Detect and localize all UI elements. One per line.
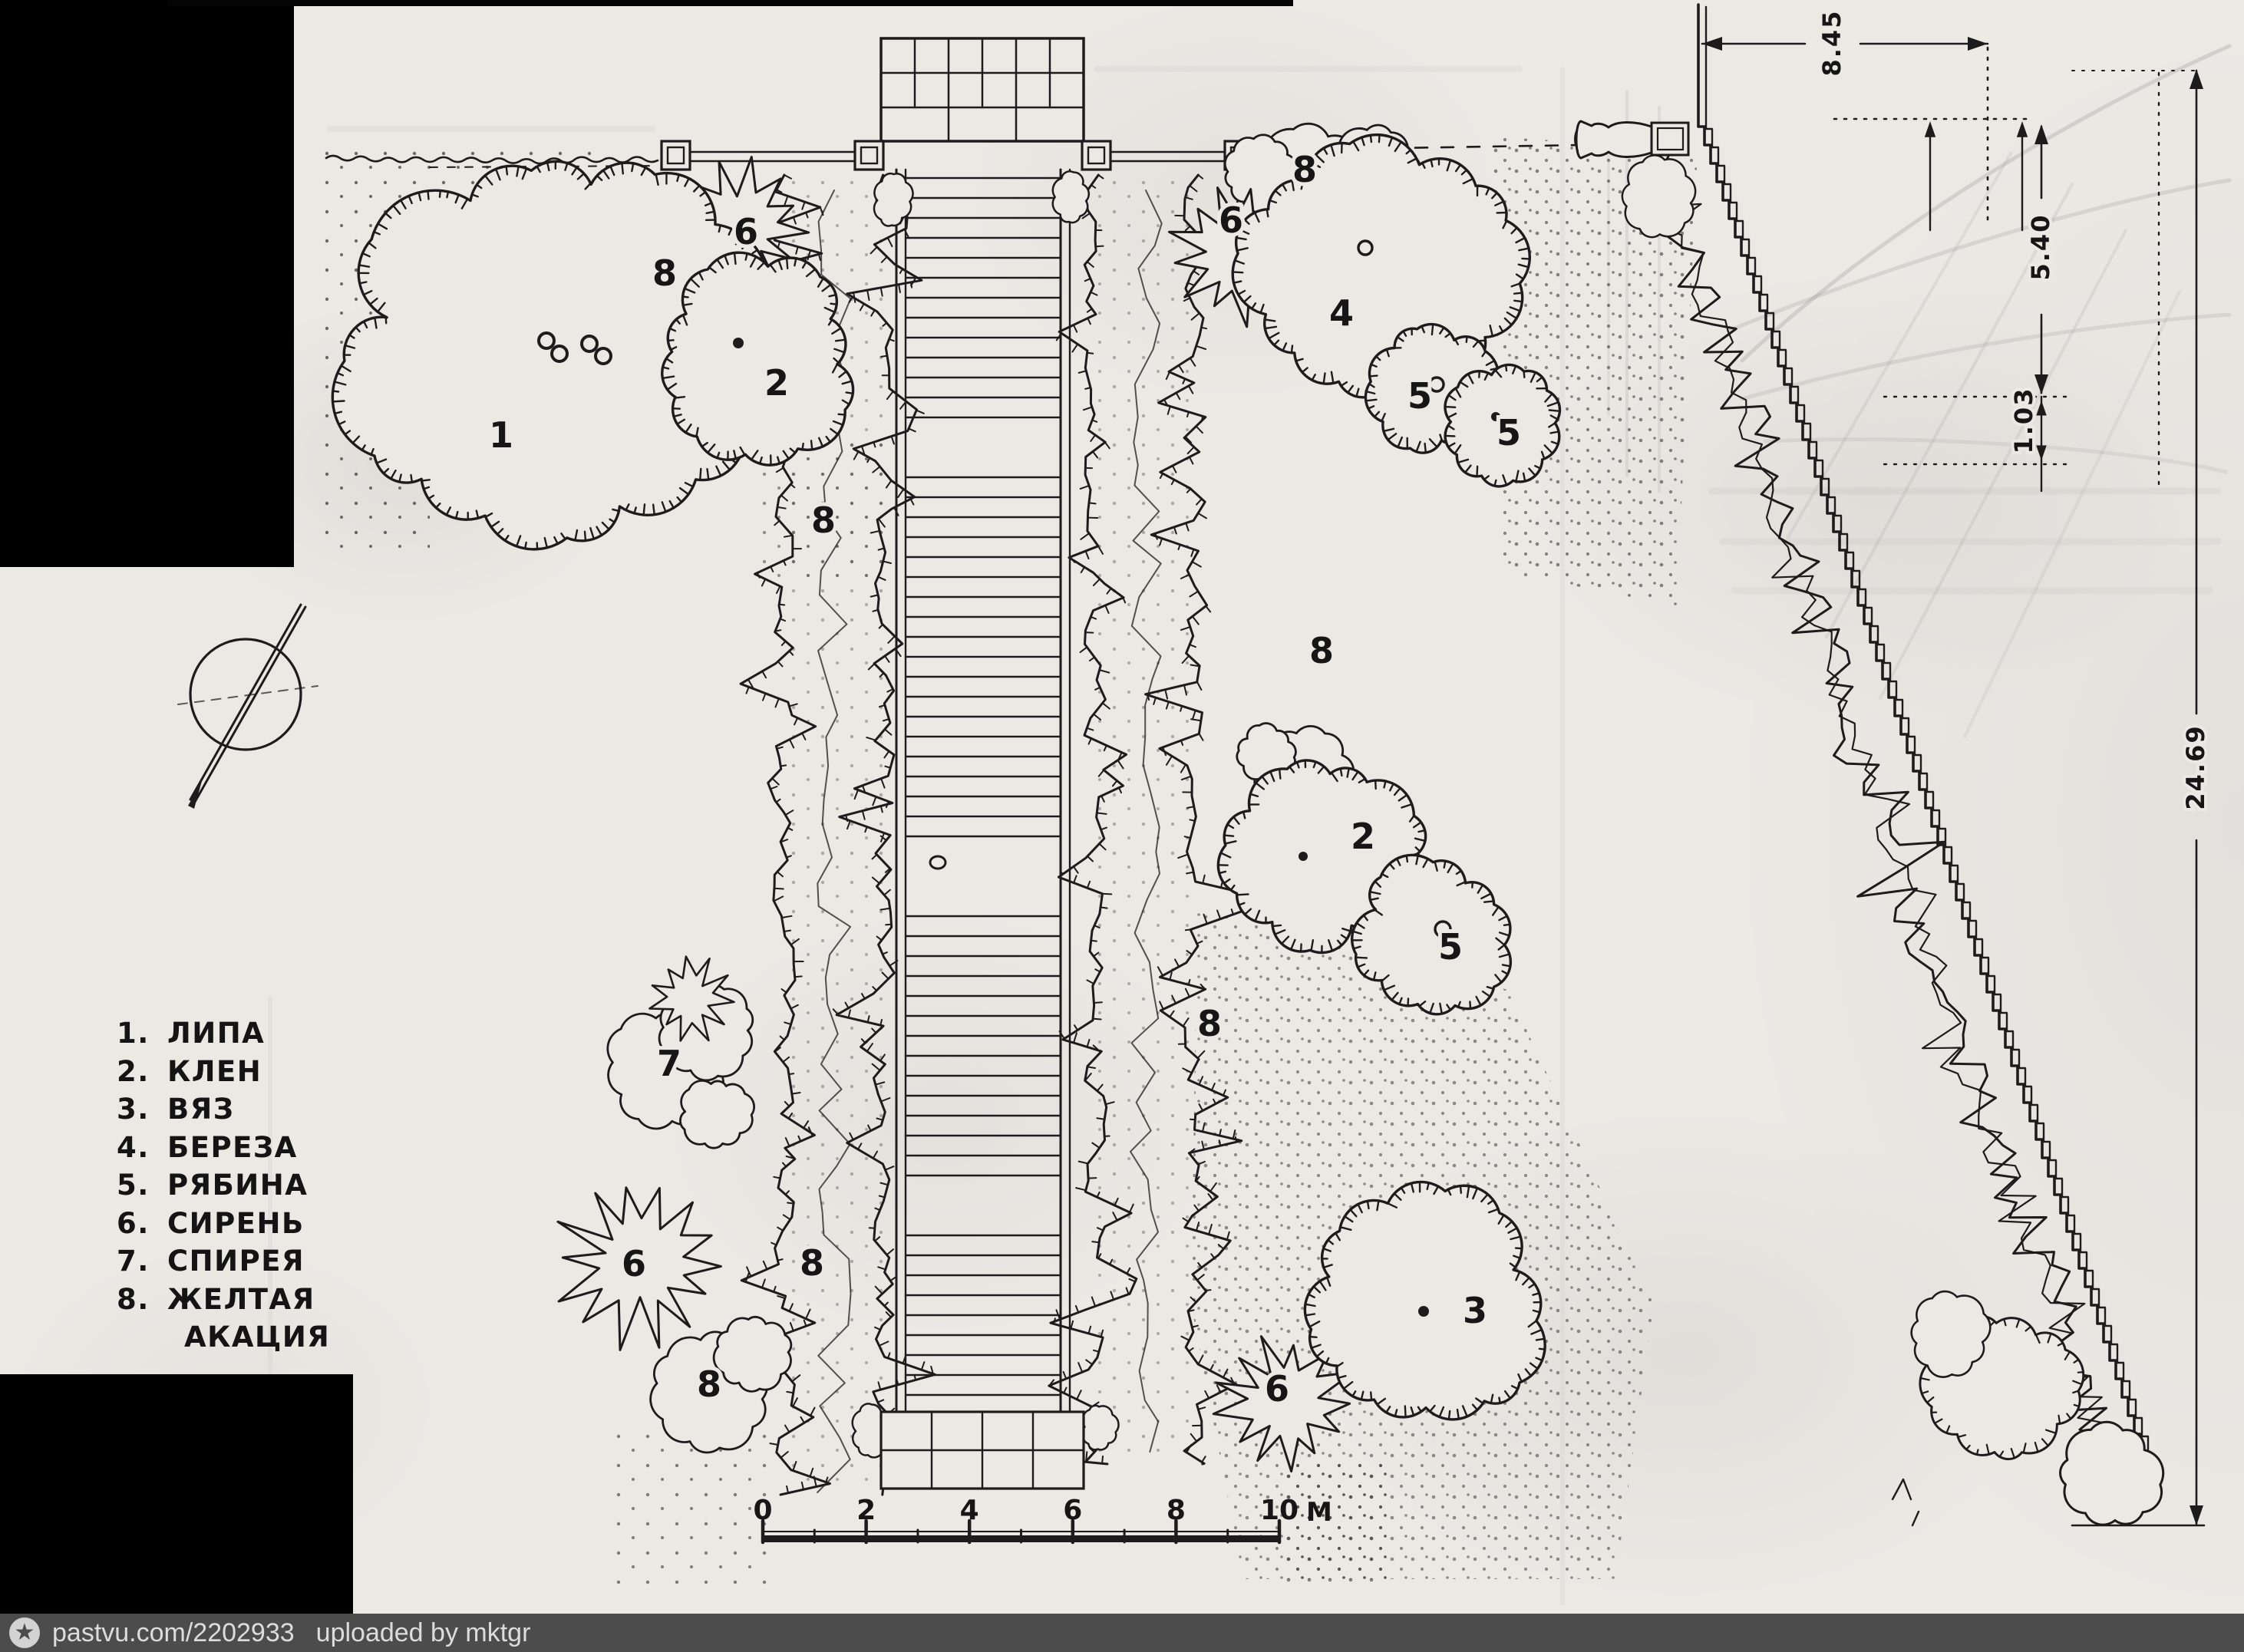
legend-row: АКАЦИЯ — [117, 1318, 330, 1357]
legend-row: 6.СИРЕНЬ — [117, 1205, 330, 1243]
tree-shapes — [332, 124, 1559, 1471]
plant-number-label: 7 — [657, 1043, 681, 1084]
plant-legend: 1.ЛИПА 2.КЛЕН 3.ВЯЗ 4.БЕРЕЗА 5.РЯБИНА 6.… — [117, 1014, 330, 1357]
legend-label: ЛИПА — [167, 1017, 265, 1050]
slope-profile-section — [1575, 5, 2204, 1525]
plant-number-label: 5 — [1407, 375, 1432, 417]
legend-label: БЕРЕЗА — [167, 1131, 298, 1164]
watermark-url: pastvu.com/2202933 — [52, 1618, 295, 1648]
plant-number-label: 8 — [1309, 630, 1334, 671]
legend-row: 4.БЕРЕЗА — [117, 1129, 330, 1167]
legend-row: 8.ЖЕЛТАЯ — [117, 1281, 330, 1319]
plant-number-label: 4 — [1329, 292, 1354, 334]
scale-tick-label: 8 — [1167, 1495, 1186, 1526]
legend-num: 3. — [117, 1090, 167, 1129]
scale-bar — [763, 1521, 1279, 1542]
plant-number-label: 8 — [811, 500, 836, 541]
legend-label: ЖЕЛТАЯ — [167, 1283, 315, 1316]
dim-total-height: 24.69 — [2181, 724, 2210, 810]
legend-num: 7. — [117, 1242, 167, 1281]
plant-number-label: 8 — [1292, 149, 1317, 190]
legend-label: ВЯЗ — [167, 1093, 234, 1126]
legend-row: 5.РЯБИНА — [117, 1166, 330, 1205]
scale-unit-label: М — [1306, 1497, 1332, 1528]
legend-label: РЯБИНА — [167, 1169, 308, 1202]
scale-tick-label: 10 — [1260, 1495, 1299, 1526]
redaction-top-left — [0, 0, 294, 567]
legend-num: 2. — [117, 1053, 167, 1091]
scale-tick-label: 0 — [753, 1495, 772, 1526]
legend-num: 6. — [117, 1205, 167, 1243]
dim-top-width: 8.45 — [1817, 10, 1846, 77]
plant-number-label: 8 — [1197, 1003, 1222, 1044]
legend-row: 2.КЛЕН — [117, 1053, 330, 1091]
watermark-bar: ★ pastvu.com/2202933 uploaded by mktgr — [0, 1614, 2244, 1652]
plant-number-label: 6 — [1265, 1368, 1289, 1410]
legend-label: АКАЦИЯ — [184, 1321, 330, 1354]
dimension-annotations: 8.45 5.40 1.03 24.69 — [1817, 10, 2210, 810]
plant-number-label: 6 — [1219, 199, 1243, 241]
dim-parapet-height: 1.03 — [2009, 387, 2038, 454]
legend-row: 1.ЛИПА — [117, 1014, 330, 1053]
plant-number-label: 1 — [489, 414, 513, 456]
scale-tick-label: 6 — [1063, 1495, 1082, 1526]
legend-label: КЛЕН — [167, 1055, 262, 1088]
pastvu-star-logo-icon: ★ — [9, 1617, 40, 1648]
legend-num: 1. — [117, 1014, 167, 1053]
plant-number-label: 5 — [1497, 412, 1521, 453]
plant-number-label: 2 — [1351, 816, 1375, 857]
plant-number-label: 8 — [800, 1242, 824, 1284]
legend-row: 7.СПИРЕЯ — [117, 1242, 330, 1281]
scale-tick-label: 4 — [960, 1495, 979, 1526]
scale-tick-label: 2 — [856, 1495, 876, 1526]
plant-number-label: 5 — [1438, 926, 1463, 968]
watermark-credit: uploaded by mktgr — [316, 1618, 531, 1648]
scan-edge-strip — [167, 0, 1293, 6]
redaction-bottom-left — [0, 1374, 353, 1614]
plant-number-label: 2 — [764, 362, 789, 404]
plant-number-label: 6 — [622, 1243, 646, 1284]
legend-label: СПИРЕЯ — [167, 1245, 305, 1278]
plant-number-label: 3 — [1463, 1290, 1487, 1331]
dim-upper-height: 5.40 — [2026, 214, 2055, 281]
legend-row: 3.ВЯЗ — [117, 1090, 330, 1129]
legend-num: 5. — [117, 1166, 167, 1205]
scanned-plan-page: 8.45 5.40 1.03 24.69 0246810М 1268886455… — [0, 0, 2244, 1652]
north-arrow-icon — [178, 605, 318, 809]
plant-number-label: 6 — [734, 211, 758, 252]
legend-num: 4. — [117, 1129, 167, 1167]
legend-label: СИРЕНЬ — [167, 1207, 305, 1240]
plant-number-label: 8 — [697, 1363, 721, 1405]
plant-number-label: 8 — [652, 252, 677, 294]
legend-num: 8. — [117, 1281, 167, 1319]
